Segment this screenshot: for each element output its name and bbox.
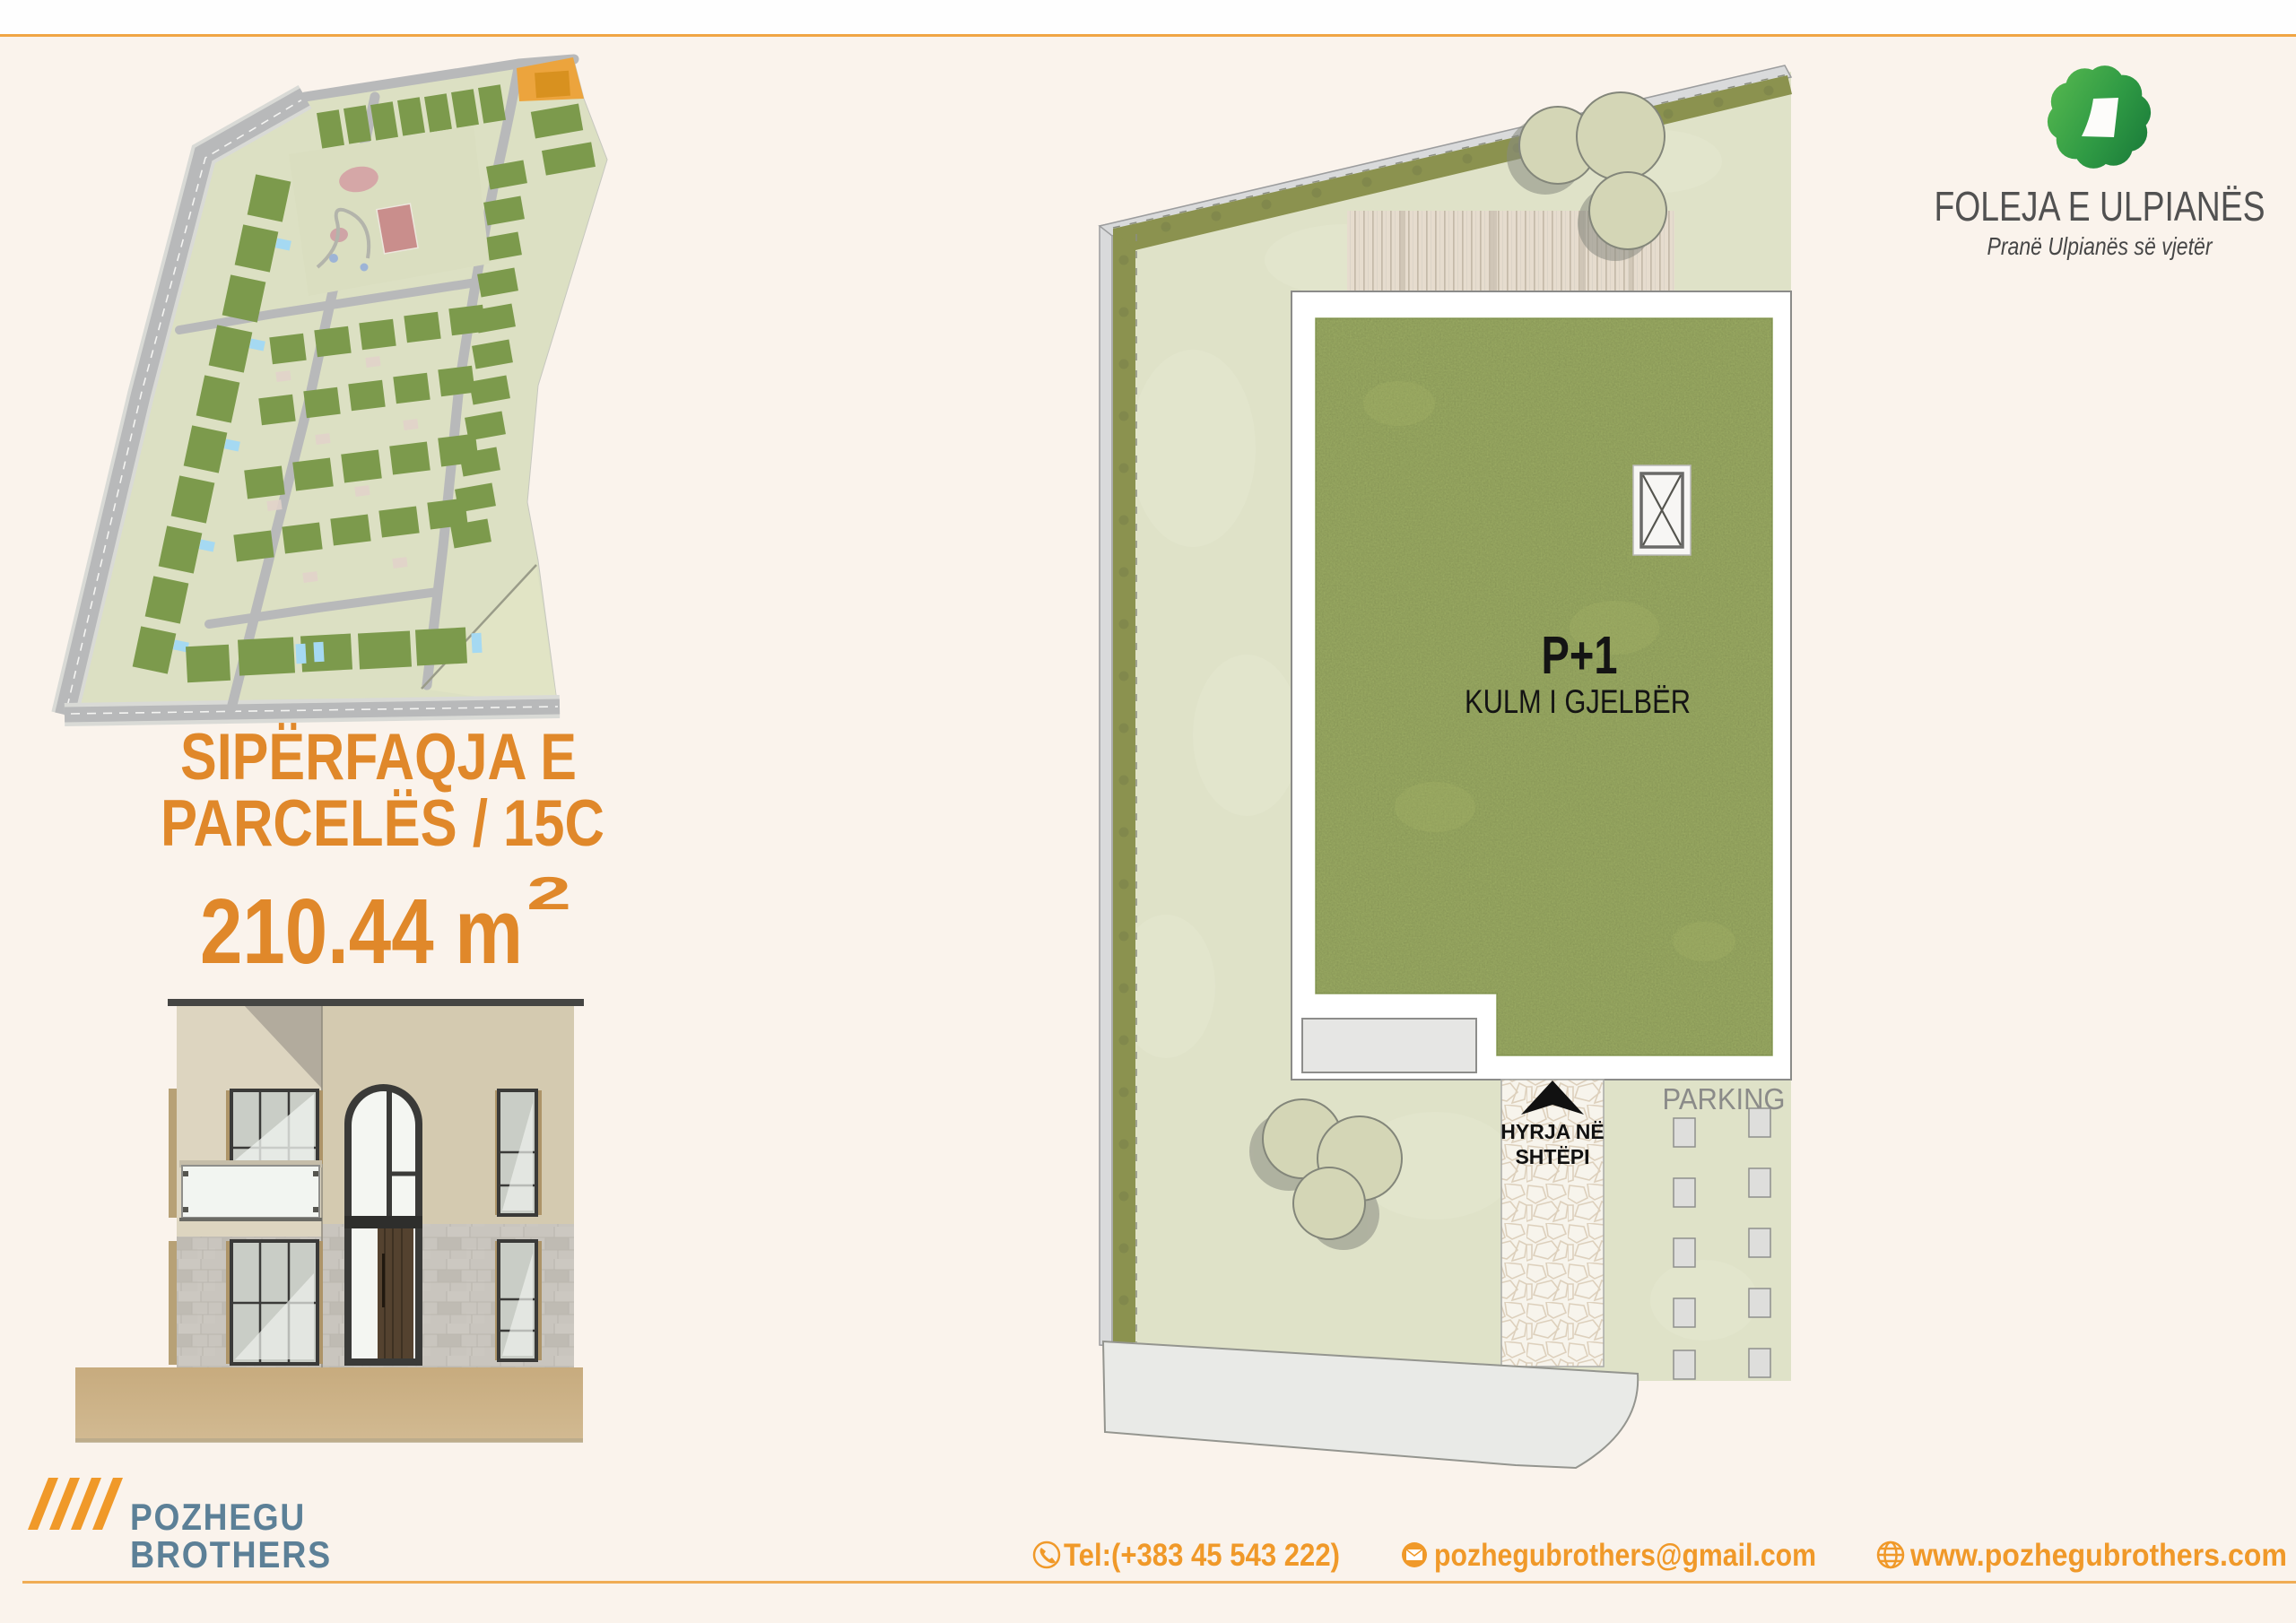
- svg-text:Tel:(+383 45 543 222): Tel:(+383 45 543 222): [1064, 1538, 1340, 1573]
- svg-text:KULM I GJELBËR: KULM I GJELBËR: [1465, 683, 1691, 720]
- svg-text:BROTHERS: BROTHERS: [130, 1533, 332, 1575]
- svg-text:www.pozhegubrothers.com: www.pozhegubrothers.com: [1909, 1538, 2287, 1573]
- svg-text:HYRJA NË: HYRJA NË: [1500, 1120, 1604, 1143]
- svg-text:P+1: P+1: [1542, 626, 1618, 685]
- svg-text:2: 2: [526, 868, 571, 920]
- svg-text:Pranë Ulpianës së vjetër: Pranë Ulpianës së vjetër: [1987, 232, 2213, 260]
- svg-text:pozhegubrothers@gmail.com: pozhegubrothers@gmail.com: [1434, 1538, 1816, 1573]
- svg-text:SIPËRFAQJA E: SIPËRFAQJA E: [180, 721, 577, 794]
- svg-text:POZHEGU: POZHEGU: [130, 1496, 306, 1538]
- svg-text:210.44 m: 210.44 m: [200, 880, 523, 983]
- svg-text:PARCELËS / 15C: PARCELËS / 15C: [161, 787, 604, 860]
- svg-text:SHTËPI: SHTËPI: [1515, 1145, 1589, 1168]
- svg-text:FOLEJA E ULPIANËS: FOLEJA E ULPIANËS: [1935, 183, 2266, 230]
